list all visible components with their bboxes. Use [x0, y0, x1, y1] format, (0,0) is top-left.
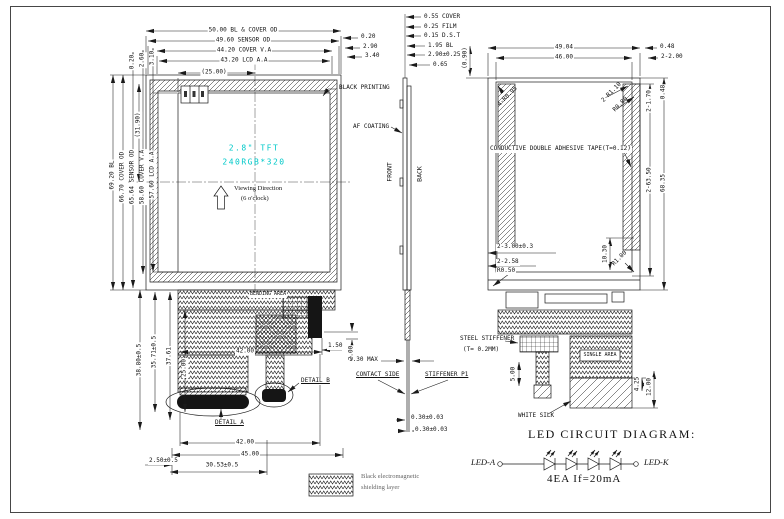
dim-label: 30.53±0.5	[205, 463, 240, 470]
dim-label: 0.20	[360, 34, 376, 41]
dim-label: 1.30 MAX	[348, 357, 379, 364]
legend-text: Black electromagnetic	[360, 473, 420, 480]
dim-label: 12.00	[647, 377, 654, 397]
dim-label: 46.00	[554, 55, 574, 62]
front-label: FRONT	[386, 161, 393, 183]
dim-label: 49.60 SENSOR OD	[215, 38, 271, 45]
dim-label: 45.00	[240, 452, 260, 459]
dim-label: 42.00	[235, 440, 255, 447]
dim-label: 5.00	[511, 366, 518, 382]
stiffener-label: STIFFENER P1	[424, 372, 469, 379]
dim-label: 2.90	[362, 44, 378, 51]
dim-label: 1.50	[327, 343, 343, 350]
dim-label: 2-63.50	[647, 166, 654, 193]
viewing-direction-label: Viewing Direction	[233, 185, 283, 192]
led-circuit-title: LED CIRCUIT DIAGRAM:	[527, 427, 697, 442]
dim-label: 0.20	[130, 54, 137, 70]
dim-label: 68.35	[661, 173, 668, 193]
af-coating-label: AF COATING	[352, 124, 390, 131]
dim-label: 50.00 BL & COVER OD	[208, 28, 279, 35]
back-label: BACK	[416, 165, 423, 183]
dim-label: 4.25	[635, 376, 642, 392]
led-note: 4EA If=20mA	[546, 473, 622, 485]
dim-label: 2-2.58	[496, 259, 520, 266]
lcd-size-label: 2.8" TFT	[228, 143, 281, 152]
dim-label: 58.60 COVER V.A	[140, 149, 147, 205]
dim-label: (25.00)	[200, 70, 227, 77]
dim-label: 66.70 COVER OD	[120, 151, 127, 204]
dim-label: 69.20 BL	[110, 160, 117, 191]
engineering-drawing-page: 50.00 BL & COVER OD 49.60 SENSOR OD 44.2…	[0, 0, 784, 519]
led-cathode-label: LED-K	[643, 457, 670, 467]
black-printing-label: BLACK PRINTING	[338, 85, 391, 92]
dim-label: 42.00	[235, 349, 255, 356]
dim-label: R0.50	[496, 268, 516, 275]
dim-label: 0.15 D.S.T	[423, 33, 461, 40]
dim-label: (0.90)	[463, 46, 470, 70]
dim-label: 2.60	[140, 52, 147, 68]
dim-label: 2-2.00	[660, 54, 684, 61]
dim-label: 37.61	[167, 346, 174, 366]
dim-label: 1.95 BL	[427, 43, 454, 50]
viewing-clock-label: (6 o'clock)	[240, 195, 270, 202]
dim-label: 38.80±0.5	[137, 343, 144, 378]
dim-label: 2-3.00±0.3	[496, 244, 534, 251]
dim-label: 0.65	[432, 62, 448, 69]
steel-stiffener-thickness-label: (T= 0.2MM)	[462, 347, 500, 354]
legend-text: shielding layer	[360, 484, 400, 491]
dim-label: 3.10	[150, 50, 157, 66]
single-area-label: SINGLE AREA	[582, 353, 617, 359]
dim-label: 25.00	[182, 358, 189, 378]
steel-stiffener-label: STEEL STIFFENER	[459, 336, 515, 343]
dim-label: 65.64 SENSOR OD	[130, 149, 137, 205]
dim-label: 2-1.70	[647, 89, 654, 113]
lcd-resolution-label: 240RGB*320	[221, 157, 286, 166]
tape-label: CONDUCTIVE DOUBLE ADHESIVE TAPE(T=0.12)	[489, 146, 632, 153]
dim-label: 0.30±0.03	[414, 427, 449, 434]
led-anode-label: LED-A	[470, 457, 496, 467]
dim-label: 0.48	[659, 44, 675, 51]
dim-label: 0.55 COVER	[423, 14, 461, 21]
dim-label: 57.60 LCD A.A	[150, 151, 157, 200]
dim-label: 49.04	[554, 45, 574, 52]
dim-label: (31.90)	[136, 111, 143, 138]
dim-label: 43.20 LCD A.A	[220, 58, 269, 65]
dim-label: 2.50±0.5	[148, 458, 179, 465]
detail-b-label: DETAIL B	[300, 378, 331, 385]
bending-area-label: BENDING AREA	[249, 292, 287, 298]
dim-label: 0.30±0.03	[410, 415, 445, 422]
dim-label: 0.25 FILM	[423, 24, 458, 31]
dim-label: 2.90±0.25	[427, 52, 462, 59]
white-silk-label: WHITE SILK	[517, 413, 555, 420]
detail-a-label: DETAIL A	[214, 420, 245, 427]
dim-label: 3.40	[364, 53, 380, 60]
dim-label: 0.48	[661, 84, 668, 100]
dim-label: 35.71±0.5	[152, 335, 159, 370]
contact-side-label: CONTACT SIDE	[355, 372, 400, 379]
dim-label: 44.20 COVER V.A	[216, 48, 272, 55]
dim-label: 10.30	[603, 244, 610, 264]
